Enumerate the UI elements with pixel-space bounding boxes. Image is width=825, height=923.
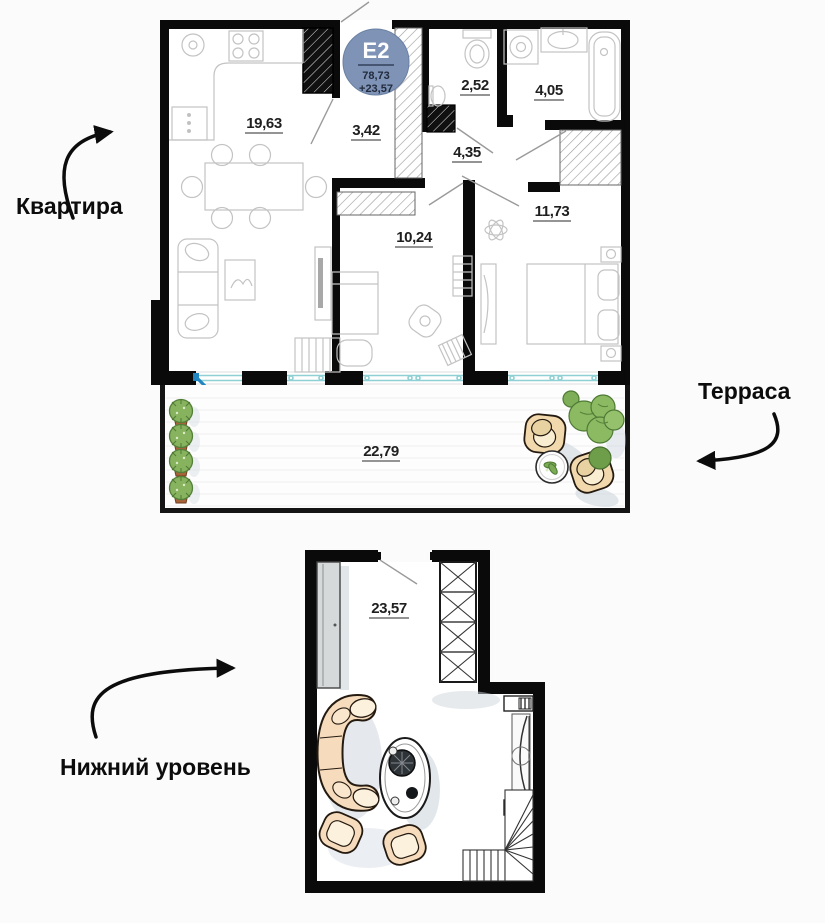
floorplan-canvas: 19,63 3,42 2,52 4,05 4,35 10,24 11,73 — [0, 0, 825, 923]
room-area-bedroom-small: 10,24 — [396, 229, 433, 246]
tall-cabinet — [317, 562, 349, 690]
terrace-armchair — [523, 413, 567, 455]
terrace-plan: 22,79 — [163, 385, 628, 512]
lower-level-plan: 23,57 — [305, 550, 545, 893]
annotation-lower-level: Нижний уровень — [60, 668, 251, 780]
room-area-corridor: 4,35 — [453, 144, 481, 161]
label-lower-level: Нижний уровень — [60, 754, 251, 780]
room-area-wc: 2,52 — [461, 77, 489, 94]
room-area-lower-level: 23,57 — [371, 600, 407, 617]
badge-second-area: +23,57 — [359, 83, 393, 95]
terrace-plants — [170, 399, 201, 504]
room-area-terrace: 22,79 — [363, 443, 399, 460]
floorplan-svg: 19,63 3,42 2,52 4,05 4,35 10,24 11,73 — [0, 0, 825, 923]
vent-shaft-small — [427, 105, 455, 132]
room-area-bathroom: 4,05 — [535, 82, 563, 99]
terrace-table — [536, 451, 568, 483]
unit-badge: E2 78,73 +23,57 — [343, 29, 409, 95]
label-terrace: Терраса — [698, 378, 791, 404]
room-area-hallway: 3,42 — [352, 122, 380, 139]
vent-shaft — [303, 28, 333, 93]
badge-total-area: 78,73 — [362, 70, 390, 82]
bedroom-small-wardrobe — [337, 192, 415, 215]
room-area-bedroom-master: 11,73 — [535, 203, 570, 220]
annotation-terrace: Терраса — [698, 378, 791, 461]
arrow-to-lower-level — [92, 668, 232, 737]
label-apartment: Квартира — [16, 193, 123, 219]
bedroom-master-wardrobe — [560, 130, 621, 185]
annotation-apartment: Квартира — [16, 132, 123, 219]
badge-code: E2 — [363, 38, 390, 63]
room-area-kitchen-living: 19,63 — [246, 115, 282, 132]
arrow-to-terrace — [700, 414, 778, 461]
coffee-table — [380, 738, 430, 818]
